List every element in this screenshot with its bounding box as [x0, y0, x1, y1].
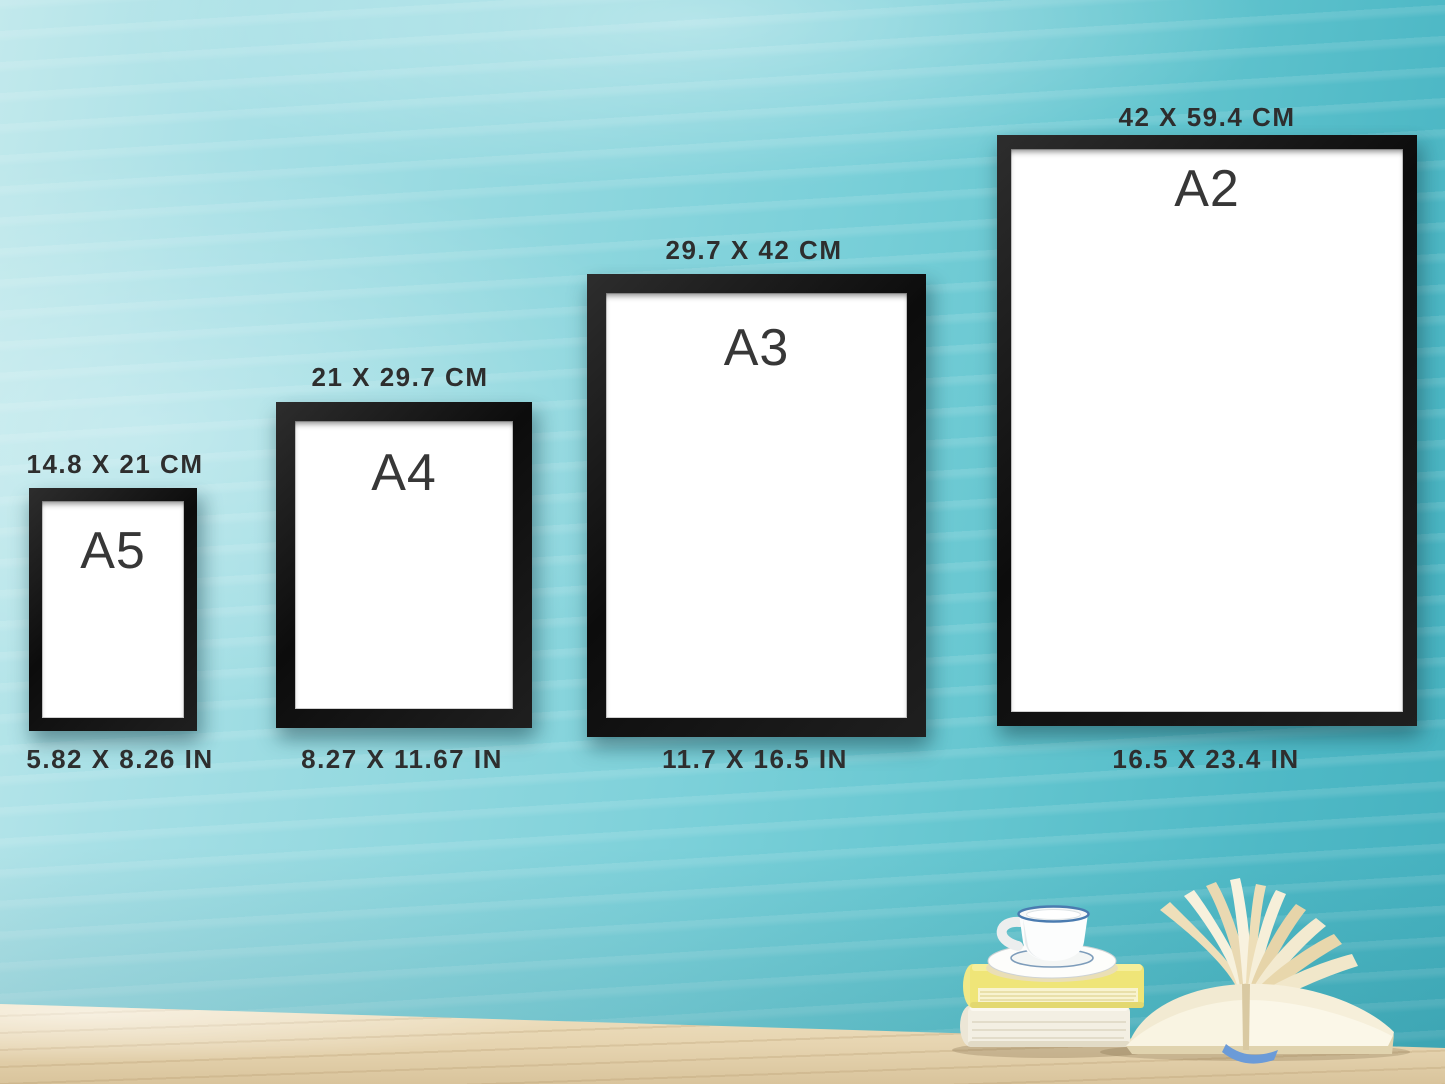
frame-a3: A3: [587, 274, 926, 737]
frame-a4-size-code: A4: [371, 447, 437, 499]
still-life: [940, 878, 1445, 1084]
frame-a3-cm-label: 29.7 X 42 CM: [666, 235, 843, 266]
frame-a4-paper: A4: [295, 421, 513, 709]
frame-a2-cm-label: 42 X 59.4 CM: [1119, 102, 1296, 133]
frame-a2-size-code: A2: [1174, 163, 1240, 215]
frame-a2-in-label: 16.5 X 23.4 IN: [1112, 744, 1299, 775]
frame-a4: A4: [276, 402, 532, 728]
cream-book: [960, 1005, 1130, 1047]
frame-size-comparison-scene: 14.8 X 21 CM A5 5.82 X 8.26 IN 21 X 29.7…: [0, 0, 1445, 1084]
frame-a5-cm-label: 14.8 X 21 CM: [27, 449, 204, 480]
frame-a2: A2: [997, 135, 1417, 726]
cup-handle: [1002, 922, 1020, 946]
frame-a4-in-label: 8.27 X 11.67 IN: [301, 744, 503, 775]
frame-a2-paper: A2: [1011, 149, 1403, 712]
frame-a5-paper: A5: [42, 501, 184, 718]
frame-a5-in-label: 5.82 X 8.26 IN: [26, 744, 213, 775]
frame-a3-paper: A3: [606, 293, 907, 718]
frame-a5-size-code: A5: [80, 525, 146, 577]
frame-a3-size-code: A3: [724, 322, 790, 374]
frame-a3-in-label: 11.7 X 16.5 IN: [662, 744, 848, 775]
frame-a5: A5: [29, 488, 197, 731]
frame-a4-cm-label: 21 X 29.7 CM: [312, 362, 489, 393]
open-book: [1126, 878, 1394, 1064]
